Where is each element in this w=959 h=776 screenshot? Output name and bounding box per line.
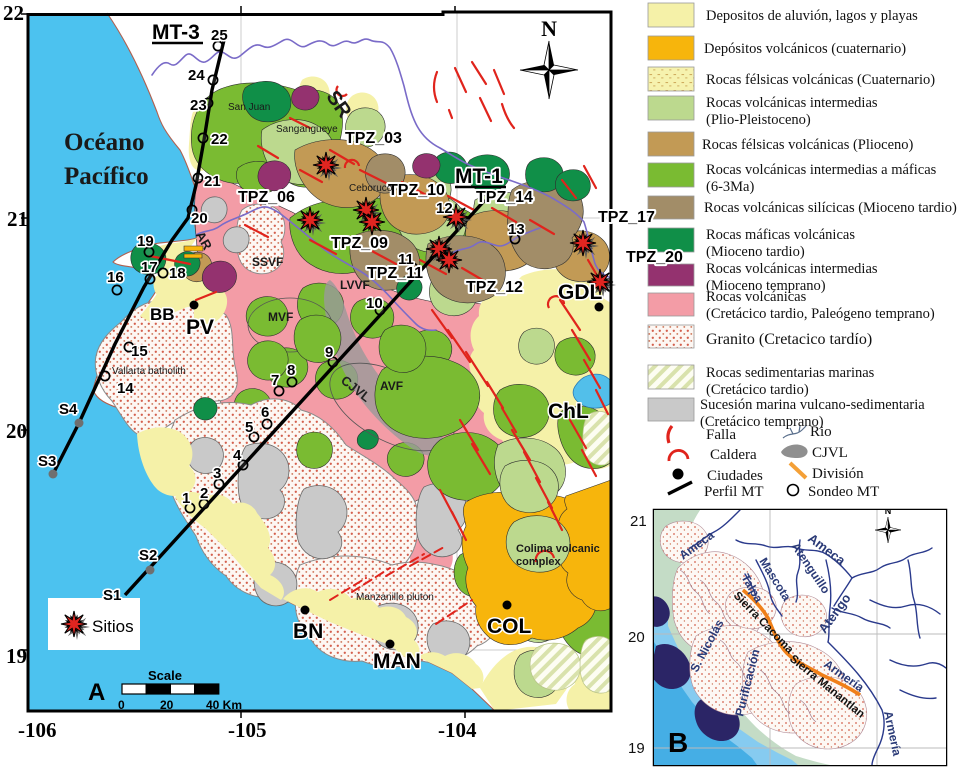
svg-text:TPZ_14: TPZ_14: [476, 189, 533, 206]
svg-text:20: 20: [6, 419, 27, 443]
svg-text:ChL: ChL: [548, 400, 589, 423]
svg-text:TPZ_06: TPZ_06: [238, 189, 295, 206]
svg-text:21: 21: [7, 207, 28, 231]
svg-text:Caldera: Caldera: [710, 447, 757, 463]
svg-text:Pacífico: Pacífico: [64, 163, 149, 190]
svg-text:5: 5: [245, 419, 253, 436]
svg-text:TPZ_11: TPZ_11: [367, 265, 423, 282]
svg-text:Sondeo MT: Sondeo MT: [808, 484, 879, 500]
svg-text:MT-3: MT-3: [152, 21, 200, 44]
svg-text:7: 7: [271, 372, 279, 389]
svg-text:20: 20: [628, 629, 645, 646]
svg-text:9: 9: [325, 344, 333, 361]
svg-text:-104: -104: [438, 718, 477, 742]
svg-text:Rocas volcánicas intermedias: Rocas volcánicas intermedias: [706, 261, 878, 277]
svg-text:GDL: GDL: [558, 281, 603, 304]
svg-text:25: 25: [211, 27, 228, 44]
svg-text:20: 20: [191, 210, 208, 227]
svg-text:12: 12: [436, 200, 453, 217]
svg-text:19: 19: [628, 740, 645, 757]
svg-text:A: A: [88, 679, 105, 706]
svg-text:Depósitos volcánicos (cuaterna: Depósitos volcánicos (cuaternario): [704, 41, 906, 57]
svg-text:Sucesión marina vulcano-sedime: Sucesión marina vulcano-sedimentaria: [700, 397, 925, 413]
svg-text:Rocas félsicas volcánicas (Cua: Rocas félsicas volcánicas (Cuaternario): [706, 72, 935, 88]
svg-text:complex: complex: [516, 556, 562, 568]
svg-text:13: 13: [508, 221, 525, 238]
svg-text:Vallarta batholith: Vallarta batholith: [112, 366, 186, 377]
svg-text:10: 10: [366, 295, 383, 312]
svg-text:Scale: Scale: [148, 668, 182, 683]
svg-text:TPZ_03: TPZ_03: [345, 130, 402, 147]
svg-text:14: 14: [117, 380, 134, 397]
svg-text:Manzanillo pluton: Manzanillo pluton: [356, 592, 434, 603]
svg-text:Falla: Falla: [706, 427, 736, 443]
svg-text:Depositos de aluvión, lagos y: Depositos de aluvión, lagos y playas: [706, 8, 918, 24]
svg-text:24: 24: [188, 67, 205, 84]
svg-text:40 Km: 40 Km: [206, 698, 242, 712]
svg-text:Rocas volcánicas: Rocas volcánicas: [706, 289, 807, 305]
svg-text:22: 22: [211, 131, 228, 148]
svg-text:(Cretácico tardio): (Cretácico tardio): [706, 382, 809, 398]
svg-text:0: 0: [118, 698, 125, 712]
svg-text:MT-1: MT-1: [455, 165, 503, 188]
svg-text:16: 16: [107, 269, 124, 286]
svg-text:B: B: [668, 727, 688, 758]
svg-text:BB: BB: [150, 305, 175, 324]
svg-text:3: 3: [213, 465, 221, 482]
svg-text:División: División: [812, 466, 864, 482]
svg-text:1: 1: [182, 490, 190, 507]
svg-text:(Plio-Pleistoceno): (Plio-Pleistoceno): [706, 112, 811, 128]
svg-text:BN: BN: [293, 620, 323, 643]
svg-text:TPZ_17: TPZ_17: [598, 209, 655, 226]
svg-text:Ciudades: Ciudades: [707, 468, 763, 484]
svg-text:Rocas volcánicas silícicas (Mi: Rocas volcánicas silícicas (Mioceno tard…: [704, 200, 957, 216]
svg-text:Colima volcanic: Colima volcanic: [516, 543, 600, 555]
svg-text:4: 4: [233, 447, 242, 464]
svg-text:Sangangueye: Sangangueye: [276, 124, 338, 135]
svg-text:(6-3Ma): (6-3Ma): [706, 179, 754, 195]
svg-text:TPZ_09: TPZ_09: [331, 235, 388, 252]
svg-text:MAN: MAN: [373, 650, 421, 673]
svg-text:S1: S1: [103, 587, 121, 604]
svg-text:San Juan: San Juan: [228, 102, 270, 113]
svg-text:21: 21: [204, 173, 221, 190]
svg-text:PV: PV: [186, 316, 214, 339]
svg-text:TPZ_10: TPZ_10: [388, 182, 445, 199]
svg-text:TPZ_20: TPZ_20: [626, 249, 683, 266]
svg-text:-105: -105: [228, 718, 267, 742]
svg-text:21: 21: [630, 513, 647, 530]
svg-text:Sitios: Sitios: [92, 617, 134, 636]
svg-text:Ceboruco: Ceboruco: [349, 183, 393, 194]
svg-text:2: 2: [200, 485, 208, 502]
svg-text:-106: -106: [18, 718, 57, 742]
svg-text:SSVF: SSVF: [252, 255, 283, 269]
svg-text:(Mioceno tardio): (Mioceno tardio): [706, 244, 805, 260]
svg-text:Rocas sedimentarias marinas: Rocas sedimentarias marinas: [706, 365, 875, 381]
svg-text:19: 19: [6, 644, 27, 668]
svg-text:Rocas máficas volcánicas: Rocas máficas volcánicas: [706, 227, 855, 243]
svg-text:N: N: [541, 16, 557, 41]
svg-text:(Cretácico tardio, Paleógeno t: (Cretácico tardio, Paleógeno temprano): [706, 306, 935, 322]
svg-text:Granito (Cretacico tardío): Granito (Cretacico tardío): [706, 331, 872, 348]
svg-text:COL: COL: [487, 615, 532, 638]
svg-text:S2: S2: [139, 547, 157, 564]
svg-text:LVVF: LVVF: [340, 278, 370, 292]
svg-text:20: 20: [160, 698, 174, 712]
svg-text:23: 23: [190, 97, 207, 114]
svg-text:MVF: MVF: [268, 310, 293, 324]
svg-text:Rocas volcánicas intermedias a: Rocas volcánicas intermedias a máficas: [706, 162, 937, 178]
svg-text:S4: S4: [59, 401, 78, 418]
svg-text:CJVL: CJVL: [812, 445, 848, 461]
svg-text:AVF: AVF: [380, 379, 403, 393]
svg-text:18: 18: [169, 265, 186, 282]
svg-text:Rio: Rio: [810, 424, 832, 440]
svg-text:Rocas volcánicas intermedias: Rocas volcánicas intermedias: [706, 95, 878, 111]
svg-text:S3: S3: [38, 453, 56, 470]
svg-text:TPZ_12: TPZ_12: [466, 279, 523, 296]
svg-text:Océano: Océano: [64, 129, 145, 156]
svg-text:N: N: [885, 506, 892, 516]
svg-text:8: 8: [287, 362, 295, 379]
svg-text:19: 19: [137, 233, 154, 250]
svg-text:17: 17: [141, 259, 158, 276]
svg-text:22: 22: [3, 1, 24, 25]
svg-text:Rocas félsicas volcánicas (Pli: Rocas félsicas volcánicas (Plioceno): [702, 137, 914, 153]
svg-text:6: 6: [261, 404, 269, 421]
svg-text:Perfil MT: Perfil MT: [704, 484, 764, 500]
svg-text:15: 15: [131, 343, 148, 360]
